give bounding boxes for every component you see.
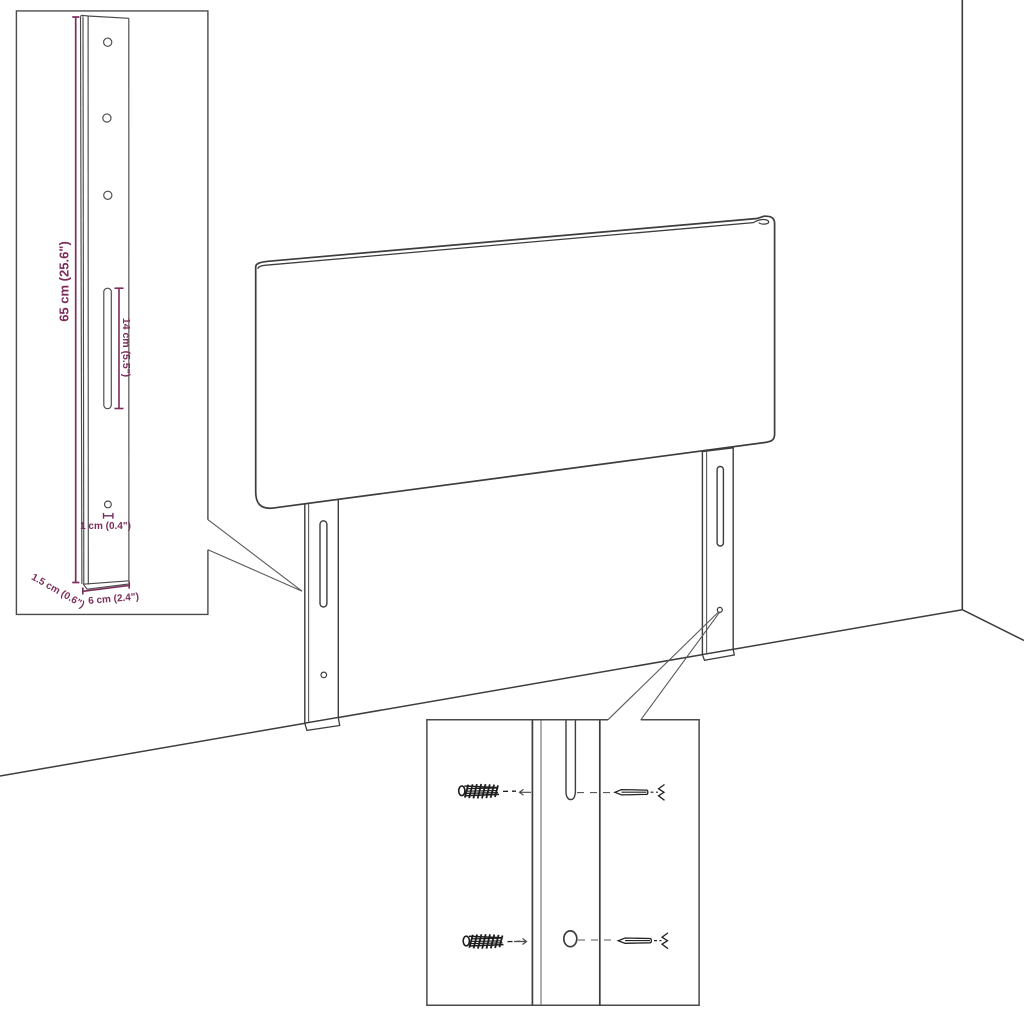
svg-text:65 cm (25.6"): 65 cm (25.6") (56, 241, 71, 322)
svg-text:1 cm (0.4"): 1 cm (0.4") (80, 521, 131, 532)
svg-text:14 cm (5.5"): 14 cm (5.5") (120, 318, 132, 377)
svg-text:1.5 cm (0.6"): 1.5 cm (0.6") (29, 572, 86, 611)
svg-text:6 cm (2.4"): 6 cm (2.4") (88, 592, 140, 607)
